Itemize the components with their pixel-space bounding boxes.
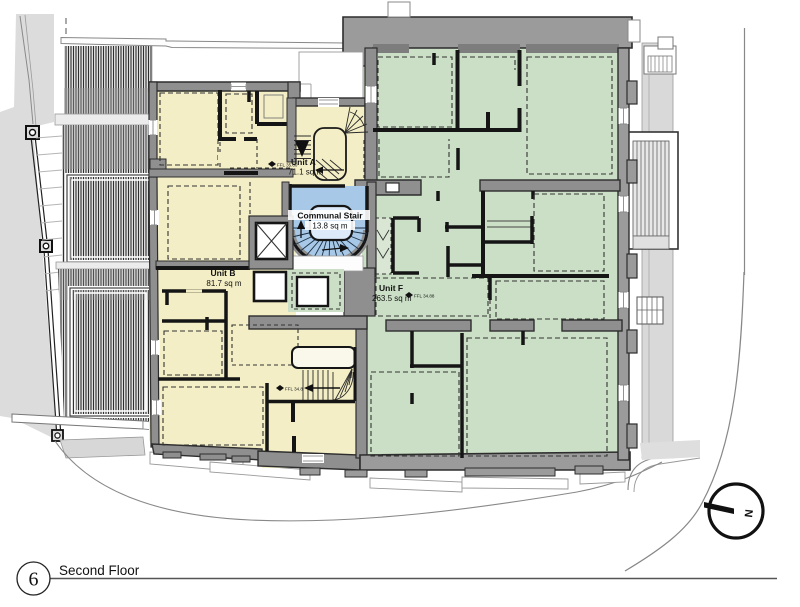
- svg-text:71.1 sq m: 71.1 sq m: [288, 168, 323, 177]
- svg-text:FFL 34.88: FFL 34.88: [414, 294, 435, 299]
- svg-text:6: 6: [29, 569, 39, 591]
- svg-text:Communal Stair: Communal Stair: [297, 211, 363, 221]
- svg-text:81.7 sq m: 81.7 sq m: [206, 279, 241, 288]
- svg-text:Unit B: Unit B: [210, 268, 235, 278]
- svg-text:Second Floor: Second Floor: [59, 563, 140, 578]
- svg-text:N: N: [742, 509, 755, 518]
- svg-text:FFL 34.8: FFL 34.8: [285, 387, 303, 392]
- svg-text:Unit F: Unit F: [379, 283, 403, 293]
- svg-text:13.8 sq m: 13.8 sq m: [312, 222, 347, 231]
- svg-text:FFL 35.80: FFL 35.80: [277, 163, 298, 168]
